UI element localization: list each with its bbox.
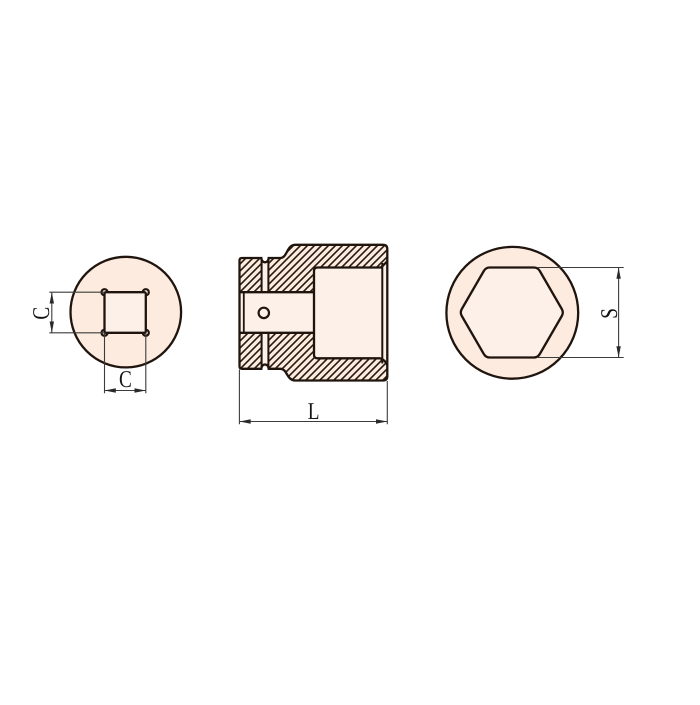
svg-text:C: C bbox=[119, 367, 132, 393]
svg-text:C: C bbox=[29, 307, 55, 320]
svg-text:S: S bbox=[597, 308, 623, 319]
svg-text:L: L bbox=[308, 399, 320, 425]
